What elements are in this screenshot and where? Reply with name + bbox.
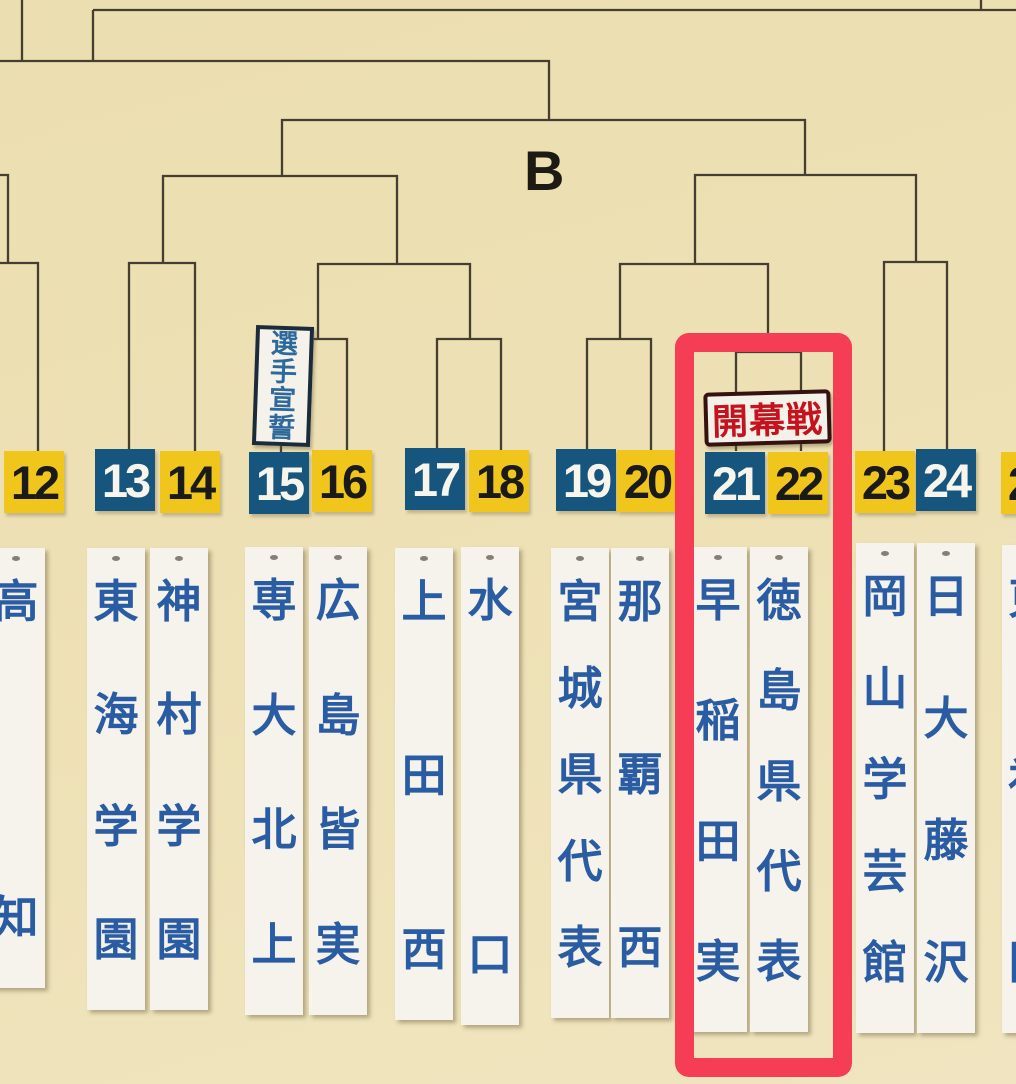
team-char: 藤: [917, 817, 975, 865]
slot-tile-17: 17: [405, 448, 465, 510]
team-char: 福: [1002, 757, 1016, 805]
team-char: 沢: [917, 939, 975, 987]
player-oath-sign: 選 手 宣 誓: [252, 325, 314, 447]
bracket-line: [587, 339, 651, 451]
bracket-line: [318, 264, 470, 339]
team-char: 口: [461, 931, 519, 979]
team-char: 岡: [856, 573, 914, 621]
team-char: 広: [309, 577, 367, 625]
team-strip-naha-nishi: 那 覇 西: [611, 548, 669, 1018]
team-char: 学: [856, 756, 914, 804]
team-char: 実: [309, 921, 367, 969]
opening-game-highlight-rectangle: [675, 333, 852, 1077]
oath-char: 誓: [268, 414, 296, 442]
team-char: 西: [395, 926, 453, 974]
team-char: 上: [245, 921, 303, 969]
team-char: 岡: [1002, 939, 1016, 987]
tournament-bracket-board: B 12 13 14 15 16 17 18 19 20 21 22 23 24…: [0, 0, 1016, 1084]
team-char: 日: [917, 573, 975, 621]
team-char: 東: [87, 578, 145, 626]
team-strip-tokai-gakuen: 東 海 学 園: [87, 548, 145, 1010]
slot-tile-25: 25: [1001, 452, 1016, 514]
team-char: 園: [87, 916, 145, 964]
team-char: 東: [1002, 575, 1016, 623]
team-char: 田: [395, 752, 453, 800]
team-strip-sendai-kitakami: 専 大 北 上: [245, 547, 303, 1015]
team-char: 高: [0, 578, 45, 626]
team-char: 表: [551, 924, 609, 972]
team-char: 上: [395, 578, 453, 626]
team-char: 神: [150, 578, 208, 626]
team-char: 館: [856, 939, 914, 987]
team-char: 山: [856, 665, 914, 713]
slot-tile-12: 12: [4, 451, 64, 513]
team-strip-ueda-nishi: 上 田 西: [395, 548, 453, 1020]
team-strip-miyagi-daihyo: 宮 城 県 代 表: [551, 548, 609, 1018]
team-strip-kamimura-gakuen: 神 村 学 園: [150, 548, 208, 1010]
bracket-line: [0, 61, 549, 120]
team-char: 城: [551, 665, 609, 713]
bracket-line: [0, 263, 38, 452]
team-char: 皆: [309, 806, 367, 854]
oath-char: 手: [270, 358, 298, 386]
team-char: 学: [87, 803, 145, 851]
team-char: 大: [917, 695, 975, 743]
team-char: 代: [551, 838, 609, 886]
team-char: 園: [150, 916, 208, 964]
slot-tile-18: 18: [469, 450, 529, 512]
team-strip-higashi-fukuoka: 東 福 岡: [1002, 545, 1016, 1033]
block-label: B: [524, 138, 564, 203]
slot-tile-15: 15: [249, 452, 309, 514]
team-strip-minakuchi: 水 口: [461, 547, 519, 1025]
bracket-line: [129, 263, 195, 451]
slot-tile-23: 23: [855, 451, 915, 513]
team-char: 県: [551, 751, 609, 799]
slot-tile-13: 13: [95, 449, 155, 511]
team-char: 北: [245, 806, 303, 854]
team-char: 西: [611, 924, 669, 972]
team-strip-okayama-gakugeikan: 岡 山 学 芸 館: [856, 543, 914, 1033]
team-char: 専: [245, 577, 303, 625]
slot-tile-20: 20: [617, 450, 677, 512]
slot-tile-16: 16: [312, 450, 372, 512]
team-strip-nichidai-fujisawa: 日 大 藤 沢: [917, 543, 975, 1033]
bracket-line: [163, 176, 397, 264]
team-char: 学: [150, 803, 208, 851]
slot-tile-24: 24: [916, 449, 976, 511]
team-char: 芸: [856, 848, 914, 896]
team-char: 覇: [611, 751, 669, 799]
bracket-line: [695, 175, 916, 264]
bracket-line: [437, 339, 501, 451]
team-char: 大: [245, 692, 303, 740]
team-char: 那: [611, 578, 669, 626]
team-strip-kochi: 高 知: [0, 548, 45, 988]
slot-tile-14: 14: [160, 451, 220, 513]
team-char: 村: [150, 691, 208, 739]
team-char: 知: [0, 894, 45, 942]
oath-char: 選: [271, 330, 299, 358]
team-char: 海: [87, 691, 145, 739]
oath-char: 宣: [269, 386, 297, 414]
team-char: 島: [309, 692, 367, 740]
team-char: 水: [461, 577, 519, 625]
bracket-line: [0, 175, 8, 263]
slot-tile-19: 19: [556, 449, 616, 511]
bracket-line: [884, 262, 947, 451]
team-char: 宮: [551, 578, 609, 626]
team-strip-hiroshima-minami: 広 島 皆 実: [309, 547, 367, 1015]
